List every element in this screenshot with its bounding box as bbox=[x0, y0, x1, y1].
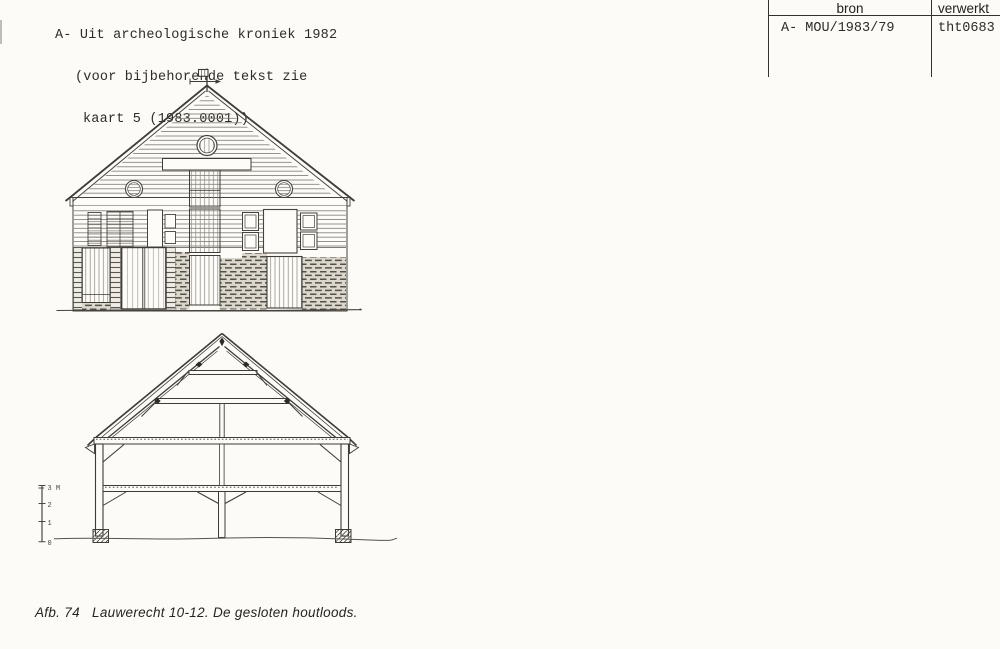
table-cell-verwerkt: tht0683 bbox=[938, 21, 995, 36]
facade-drawing bbox=[40, 62, 370, 318]
scale-label-1: 1 bbox=[48, 520, 52, 528]
table-cell-bron: A- MOU/1983/79 bbox=[781, 21, 894, 36]
tie-beam bbox=[94, 438, 350, 445]
upper-collar-beam bbox=[189, 371, 257, 375]
brick-quoin bbox=[111, 248, 121, 310]
scale-label-2: 2 bbox=[48, 502, 52, 510]
scale-label-0: 0 bbox=[48, 540, 52, 548]
brick-wall bbox=[302, 257, 346, 310]
table-header-bron: bron bbox=[769, 1, 931, 16]
side-post bbox=[96, 444, 104, 536]
small-window bbox=[165, 232, 176, 244]
table-header-verwerkt: verwerkt bbox=[938, 1, 989, 16]
weathervane-icon bbox=[190, 69, 221, 93]
brick-wall bbox=[176, 252, 190, 310]
lower-collar-beam bbox=[156, 399, 289, 404]
eaves-bracket bbox=[350, 444, 359, 454]
brick-pier bbox=[74, 248, 83, 310]
scale-label-3m: 3 M bbox=[48, 485, 61, 493]
center-strut bbox=[220, 404, 224, 439]
timber-frame bbox=[86, 438, 359, 543]
brick-quoin bbox=[166, 248, 176, 310]
center-post-upper bbox=[220, 444, 225, 486]
scan-edge-artifact bbox=[0, 20, 2, 44]
table-column-divider bbox=[931, 0, 932, 77]
center-post bbox=[219, 492, 226, 538]
eaves-bracket bbox=[86, 444, 95, 454]
brick-wall bbox=[220, 258, 243, 310]
double-door bbox=[122, 248, 167, 310]
plank-door bbox=[148, 210, 163, 247]
cross-section-drawing: 3 M 2 1 0 bbox=[28, 325, 413, 555]
brick-wall bbox=[82, 303, 111, 311]
post-footing bbox=[336, 530, 352, 543]
sign-board bbox=[163, 159, 252, 171]
louvred-shutter-window bbox=[88, 213, 101, 246]
figure-caption: Afb. 74 Lauwerecht 10-12. De gesloten ho… bbox=[35, 565, 360, 649]
side-post bbox=[341, 444, 349, 536]
brick-wall bbox=[242, 253, 267, 310]
plank-door bbox=[267, 257, 302, 309]
caption-line: Afb. 74 Lauwerecht 10-12. De gesloten ho… bbox=[35, 603, 360, 622]
large-window-opening bbox=[264, 210, 298, 254]
scanned-document-page: A- Uit archeologische kroniek 1982 (voor… bbox=[0, 0, 1000, 649]
small-window bbox=[165, 215, 176, 229]
post-footing bbox=[93, 530, 109, 543]
roof-truss bbox=[88, 334, 357, 446]
middle-floor-beam bbox=[103, 486, 341, 492]
archive-note-line: A- Uit archeologische kroniek 1982 bbox=[55, 29, 337, 43]
